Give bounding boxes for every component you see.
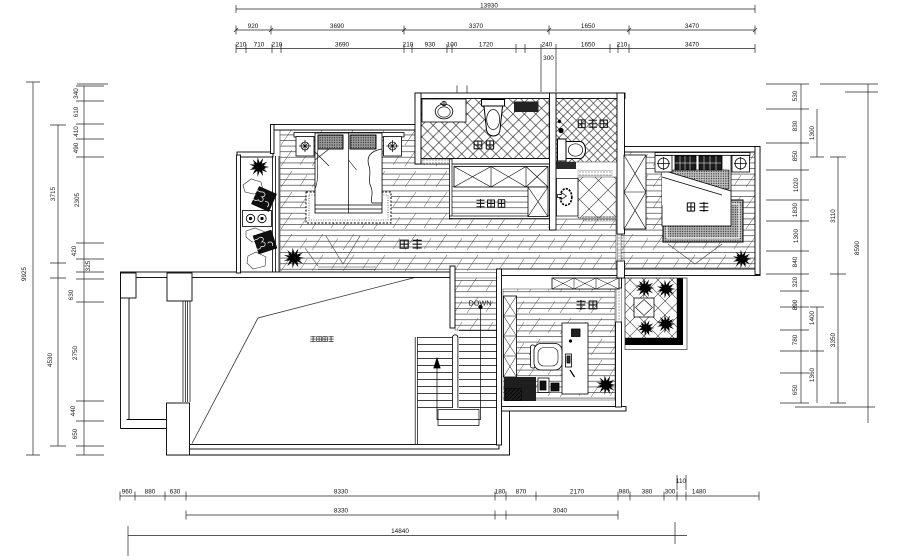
svg-text:930: 930	[425, 42, 436, 49]
svg-text:1650: 1650	[581, 42, 596, 49]
svg-text:630: 630	[170, 489, 181, 496]
svg-text:1300: 1300	[809, 125, 816, 140]
svg-text:1650: 1650	[581, 23, 596, 30]
svg-text:100: 100	[447, 42, 458, 49]
svg-text:3040: 3040	[553, 508, 568, 515]
svg-text:3690: 3690	[335, 42, 350, 49]
svg-text:320: 320	[792, 276, 799, 287]
svg-text:630: 630	[68, 289, 75, 300]
svg-text:240: 240	[542, 42, 553, 49]
svg-text:420: 420	[71, 245, 78, 256]
svg-text:490: 490	[73, 142, 80, 153]
svg-text:650: 650	[792, 384, 799, 395]
svg-text:880: 880	[145, 489, 156, 496]
svg-text:840: 840	[792, 256, 799, 267]
svg-text:870: 870	[516, 489, 527, 496]
svg-text:610: 610	[73, 106, 80, 117]
svg-text:380: 380	[642, 489, 653, 496]
svg-text:8590: 8590	[854, 240, 861, 255]
svg-text:780: 780	[792, 334, 799, 345]
svg-text:410: 410	[73, 126, 80, 137]
svg-text:3470: 3470	[685, 42, 700, 49]
svg-text:8330: 8330	[334, 489, 349, 496]
svg-text:1400: 1400	[809, 310, 816, 325]
svg-text:650: 650	[72, 428, 79, 439]
svg-text:3690: 3690	[330, 23, 345, 30]
svg-text:210: 210	[403, 42, 414, 49]
svg-text:2170: 2170	[570, 489, 585, 496]
svg-text:2305: 2305	[74, 192, 81, 207]
svg-text:325: 325	[85, 260, 92, 271]
svg-text:300: 300	[665, 489, 676, 496]
svg-text:710: 710	[254, 42, 265, 49]
svg-text:3715: 3715	[50, 186, 57, 201]
svg-text:2750: 2750	[72, 345, 79, 360]
svg-text:1360: 1360	[809, 367, 816, 382]
svg-text:4530: 4530	[47, 352, 54, 367]
svg-text:180: 180	[495, 489, 506, 496]
svg-text:210: 210	[617, 42, 628, 49]
svg-text:3110: 3110	[830, 209, 837, 223]
svg-text:440: 440	[70, 405, 77, 416]
svg-text:8330: 8330	[334, 508, 349, 515]
svg-text:210: 210	[236, 42, 247, 49]
svg-text:3370: 3370	[469, 23, 484, 30]
svg-text:1830: 1830	[792, 202, 799, 217]
svg-text:1300: 1300	[793, 228, 800, 243]
svg-text:210: 210	[272, 42, 283, 49]
svg-text:830: 830	[792, 120, 799, 131]
svg-text:300: 300	[543, 55, 554, 62]
svg-text:13930: 13930	[480, 3, 498, 10]
svg-text:1020: 1020	[793, 177, 800, 192]
svg-text:920: 920	[248, 23, 259, 30]
svg-text:340: 340	[73, 88, 80, 99]
svg-text:1720: 1720	[479, 42, 494, 49]
svg-text:980: 980	[619, 489, 630, 496]
svg-text:14840: 14840	[391, 528, 409, 535]
svg-text:890: 890	[792, 299, 799, 310]
svg-text:960: 960	[122, 489, 133, 496]
svg-text:110: 110	[676, 478, 687, 485]
svg-text:1480: 1480	[692, 489, 707, 496]
svg-text:850: 850	[792, 150, 799, 161]
svg-text:DOWN: DOWN	[468, 299, 491, 308]
svg-text:3470: 3470	[685, 23, 700, 30]
svg-text:3350: 3350	[830, 332, 837, 347]
svg-text:530: 530	[792, 90, 799, 101]
svg-text:9925: 9925	[21, 266, 28, 281]
